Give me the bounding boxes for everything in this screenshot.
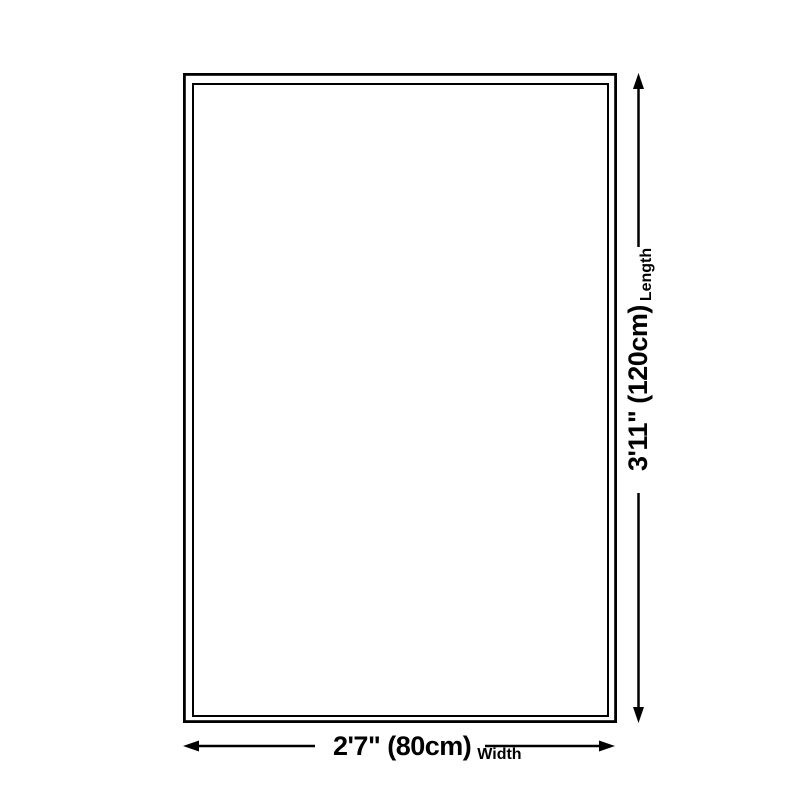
width-dimension-label: 2'7" (80cm) Width <box>315 727 522 765</box>
arrow-right-icon <box>599 741 615 752</box>
diagram-canvas <box>0 0 800 800</box>
arrow-down-icon <box>633 707 644 723</box>
length-dimension-value: 3'11" (120cm) <box>625 305 652 471</box>
length-dimension-label: 3'11" (120cm) Length <box>618 247 658 493</box>
width-dimension-value: 2'7" (80cm) <box>315 727 485 766</box>
width-axis-label: Width <box>477 747 521 763</box>
rug-outline-inner <box>193 84 608 716</box>
arrow-up-icon <box>633 73 644 89</box>
arrow-left-icon <box>183 741 199 752</box>
length-axis-label: Length <box>639 248 655 301</box>
size-diagram: 3'11" (120cm) Length 2'7" (80cm) Width <box>0 0 800 800</box>
